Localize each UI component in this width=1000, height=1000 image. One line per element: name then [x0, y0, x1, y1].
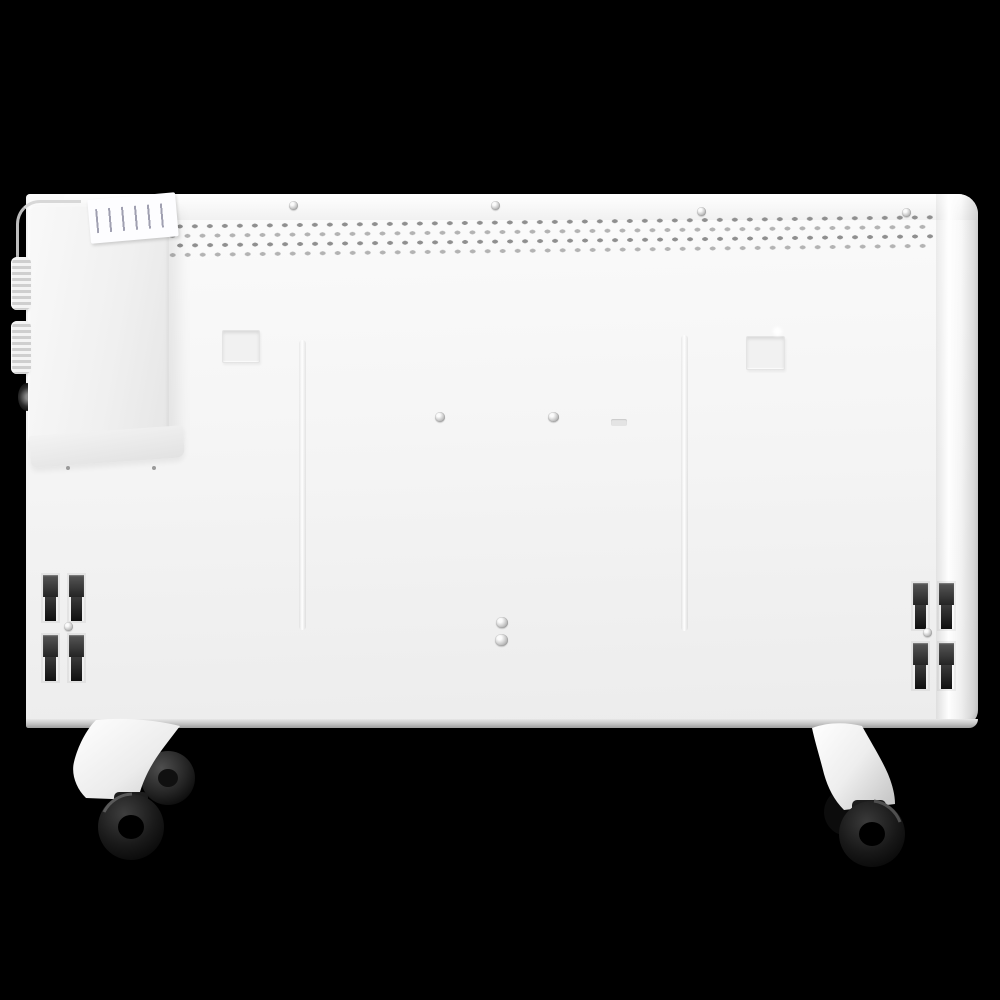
screw [66, 466, 70, 470]
mount-clip [939, 643, 954, 689]
screw [902, 208, 911, 217]
clip-stem [45, 657, 56, 681]
front-wheel-hub [859, 822, 885, 846]
screw [152, 466, 156, 470]
screw [289, 201, 298, 210]
stamped-marking [611, 419, 627, 426]
image-description: Rear view of a white electric panel conv… [0, 0, 1, 1]
label-fine-print [95, 203, 171, 233]
caster-bracket [812, 723, 895, 810]
mount-clip [939, 583, 954, 629]
clip-head [43, 635, 58, 657]
rear-wheel-hub [158, 769, 178, 787]
product-photo-canvas: Rear view of a white electric panel conv… [0, 0, 1000, 1000]
front-wheel-hub [118, 815, 144, 839]
thermostat-knob [11, 257, 31, 310]
panel-groove [681, 335, 688, 631]
clip-stem [45, 597, 56, 621]
specular-highlight [773, 327, 782, 336]
clip-stem [941, 605, 952, 629]
screw [697, 207, 706, 216]
screw [491, 201, 500, 210]
cord-bracket-wire [16, 200, 81, 261]
mount-clip [913, 583, 928, 629]
clip-head [69, 635, 84, 657]
screw [495, 634, 508, 646]
clip-stem [915, 605, 926, 629]
clip-head [913, 583, 928, 605]
clip-stem [941, 665, 952, 689]
screw [496, 617, 508, 628]
mount-clip [69, 575, 84, 621]
screw [64, 622, 73, 631]
clip-head [939, 643, 954, 665]
mount-clip [43, 575, 58, 621]
clip-head [43, 575, 58, 597]
clip-head [913, 643, 928, 665]
wall-mount-slot [746, 336, 785, 370]
screw [548, 412, 559, 422]
mount-clip [69, 635, 84, 681]
clip-stem [71, 657, 82, 681]
power-knob [11, 321, 31, 374]
clip-stem [71, 597, 82, 621]
caster-right [782, 712, 967, 887]
screw [923, 628, 932, 637]
spec-label [87, 192, 178, 244]
wall-mount-slot [222, 330, 260, 363]
clip-head [939, 583, 954, 605]
panel-groove [299, 340, 306, 630]
screw [435, 412, 445, 422]
mount-clip [43, 635, 58, 681]
clip-head [69, 575, 84, 597]
mount-clip [913, 643, 928, 689]
clip-stem [915, 665, 926, 689]
caster-left [40, 712, 225, 887]
